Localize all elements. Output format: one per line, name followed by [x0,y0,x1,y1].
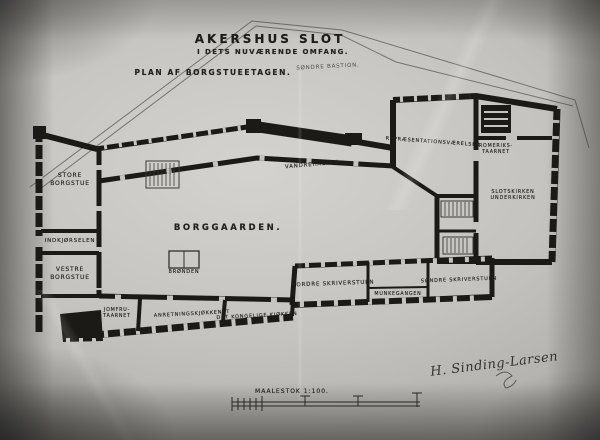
room-label-slotskirken: SLOTSKIRKEN UNDERKIRKEN [490,189,535,202]
well-label: BRØNDEN [169,269,200,275]
room-label-vestre-borgstue: VESTRE BORGSTUE [50,266,90,281]
scale-caption: MAALESTOK 1:100. [255,388,329,396]
stair-hatch [146,161,473,254]
plan-title: PLAN AF BORGSTUEETAGEN. [135,68,292,77]
drawing-title: AKERSHUS SLOT [195,32,346,47]
room-label-store-borgstue: STORE BORGSTUE [50,172,90,187]
courtyard-label: BORGGAARDEN. [174,223,282,234]
drawing-subtitle: I DETS NUVÆRENDE OMFANG. [197,48,349,57]
pencil-scribble [496,372,516,388]
scale-bar [232,393,422,411]
room-label-jomfrutaarnet: JOMFRU- TAARNET [103,308,131,320]
plan-photograph: AKERSHUS SLOT I DETS NUVÆRENDE OMFANG. P… [0,0,600,440]
subtitle-text: I DETS NUVÆRENDE OMFANG. [197,48,349,57]
room-label-romerikstaarnet: ROMERIKS- TAARNET [479,144,513,156]
room-label-munkegangen: MUNKEGANGEN [374,292,421,298]
room-label-indkjoersel: INDKJØRSELEN [45,238,96,245]
title-text: AKERSHUS SLOT [195,32,346,47]
castle-walls [33,96,557,342]
plan-title-text: PLAN AF BORGSTUEETAGEN. [135,68,292,77]
well [169,251,199,268]
